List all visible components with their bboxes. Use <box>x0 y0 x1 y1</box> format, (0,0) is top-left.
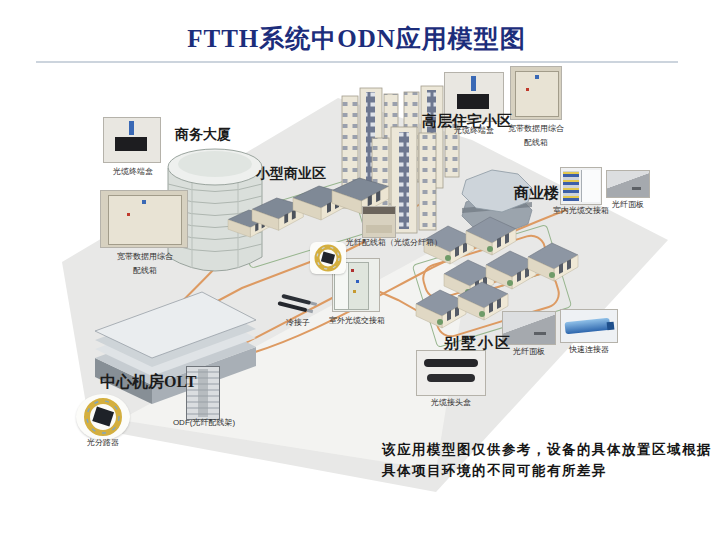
splitter-coil-bottom <box>80 396 126 438</box>
caption-broadband-left-line2: 配线箱 <box>100 266 190 276</box>
cold-splice-photo <box>276 292 320 318</box>
caption-fiber-panel-bottom: 光纤面板 <box>501 347 557 357</box>
caption-terminal-box-top: 光缆终端盒 <box>442 126 506 136</box>
fiber-terminal-box-photo-left <box>103 117 161 163</box>
broadband-box-photo-left <box>100 190 188 248</box>
caption-fiber-panel-right: 光纤面板 <box>604 200 652 210</box>
caption-odf: ODF(光纤配线架) <box>170 418 238 428</box>
caption-optical-splitter: 光分路器 <box>78 438 128 448</box>
indoor-cross-connect-photo <box>560 167 602 205</box>
caption-terminal-box-left: 光缆终端盒 <box>103 167 163 177</box>
fiber-distribution-box-photo <box>362 206 396 238</box>
caption-outdoor-cross-connect: 室外光缆交接箱 <box>324 316 390 326</box>
caption-broadband-top-line2: 配线箱 <box>502 138 570 148</box>
splice-closure-photo <box>416 350 486 396</box>
label-central-office: 中心机房OLT <box>100 372 196 393</box>
caption-fiber-distribution-box: 光纤配线箱（光缆分纤箱） <box>330 238 458 248</box>
caption-cold-splice: 冷接子 <box>280 318 316 328</box>
broadband-box-photo-top <box>510 66 562 120</box>
label-commercial-building: 商业楼 <box>514 184 559 203</box>
label-business-tower: 商务大厦 <box>175 126 231 144</box>
disclaimer-line1: 该应用模型图仅供参考，设备的具体放置区域根据 <box>382 441 712 459</box>
ftth-odn-diagram: FTTH系统中ODN应用模型图 <box>0 0 713 553</box>
fiber-panel-photo-right <box>606 170 650 198</box>
caption-splice-closure: 光缆接头盒 <box>418 398 484 408</box>
disclaimer-line2: 具体项目环境的不同可能有所差异 <box>382 462 607 480</box>
label-small-commercial: 小型商业区 <box>256 165 326 183</box>
caption-broadband-top-line1: 宽带数据用综合 <box>502 124 570 134</box>
caption-broadband-left-line1: 宽带数据用综合 <box>100 252 190 262</box>
quick-connector-photo <box>560 309 618 343</box>
caption-quick-connector: 快速连接器 <box>559 345 619 355</box>
